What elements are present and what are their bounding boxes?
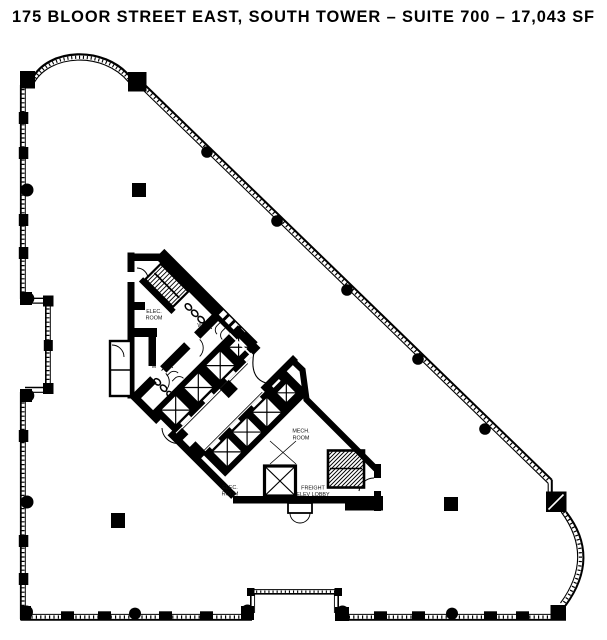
svg-text:W: W xyxy=(197,323,203,329)
svg-text:ROOM: ROOM xyxy=(293,436,310,442)
svg-text:MECH.: MECH. xyxy=(292,429,309,435)
svg-text:ELEC.: ELEC. xyxy=(222,485,238,491)
svg-text:ELEV LOBBY: ELEV LOBBY xyxy=(296,492,330,498)
svg-text:ROOM: ROOM xyxy=(146,316,163,322)
svg-text:M: M xyxy=(152,364,157,370)
svg-text:FREIGHT: FREIGHT xyxy=(301,486,325,492)
svg-text:ROOM: ROOM xyxy=(222,492,239,498)
svg-text:ELEC.: ELEC. xyxy=(146,309,162,315)
